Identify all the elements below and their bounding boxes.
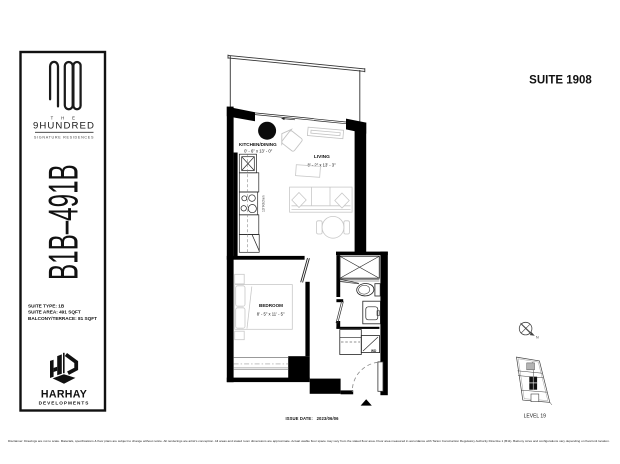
svg-text:WD: WD <box>371 349 377 353</box>
svg-text:SUITE AREA: 491 SQFT: SUITE AREA: 491 SQFT <box>28 310 81 315</box>
svg-text:N: N <box>536 336 539 340</box>
svg-text:DEVELOPMENTS: DEVELOPMENTS <box>39 400 90 405</box>
svg-text:SUITE 1908: SUITE 1908 <box>529 75 592 87</box>
svg-text:0' - 6" x 13' - 0": 0' - 6" x 13' - 0" <box>244 149 273 154</box>
svg-text:KITCHEN/DINING: KITCHEN/DINING <box>239 142 277 147</box>
svg-text:B1B–491B: B1B–491B <box>41 164 88 280</box>
svg-text:BALCONY/TERRACE: 81 SQFT: BALCONY/TERRACE: 81 SQFT <box>28 316 97 321</box>
svg-text:8' - 5" x 11' - 5": 8' - 5" x 11' - 5" <box>257 311 285 316</box>
svg-text:8' - 2" x 13' - 3": 8' - 2" x 13' - 3" <box>308 163 337 168</box>
svg-text:Disclaimer: Drawings are not t: Disclaimer: Drawings are not to scale. M… <box>8 439 610 443</box>
svg-text:LEVEL 19: LEVEL 19 <box>524 414 547 420</box>
svg-text:9HUNDRED: 9HUNDRED <box>33 121 95 132</box>
svg-text:BEDROOM: BEDROOM <box>259 303 283 308</box>
svg-text:SUITE TYPE: 1B: SUITE TYPE: 1B <box>28 304 65 309</box>
svg-text:SIGNATURE RESIDENCES: SIGNATURE RESIDENCES <box>34 136 94 140</box>
svg-text:13' Kitchen: 13' Kitchen <box>262 195 266 212</box>
svg-text:LIVING: LIVING <box>314 154 330 160</box>
svg-text:HARHAY: HARHAY <box>41 389 87 401</box>
svg-text:ISSUE DATE: 2023/06/06: ISSUE DATE: 2023/06/06 <box>286 416 340 421</box>
